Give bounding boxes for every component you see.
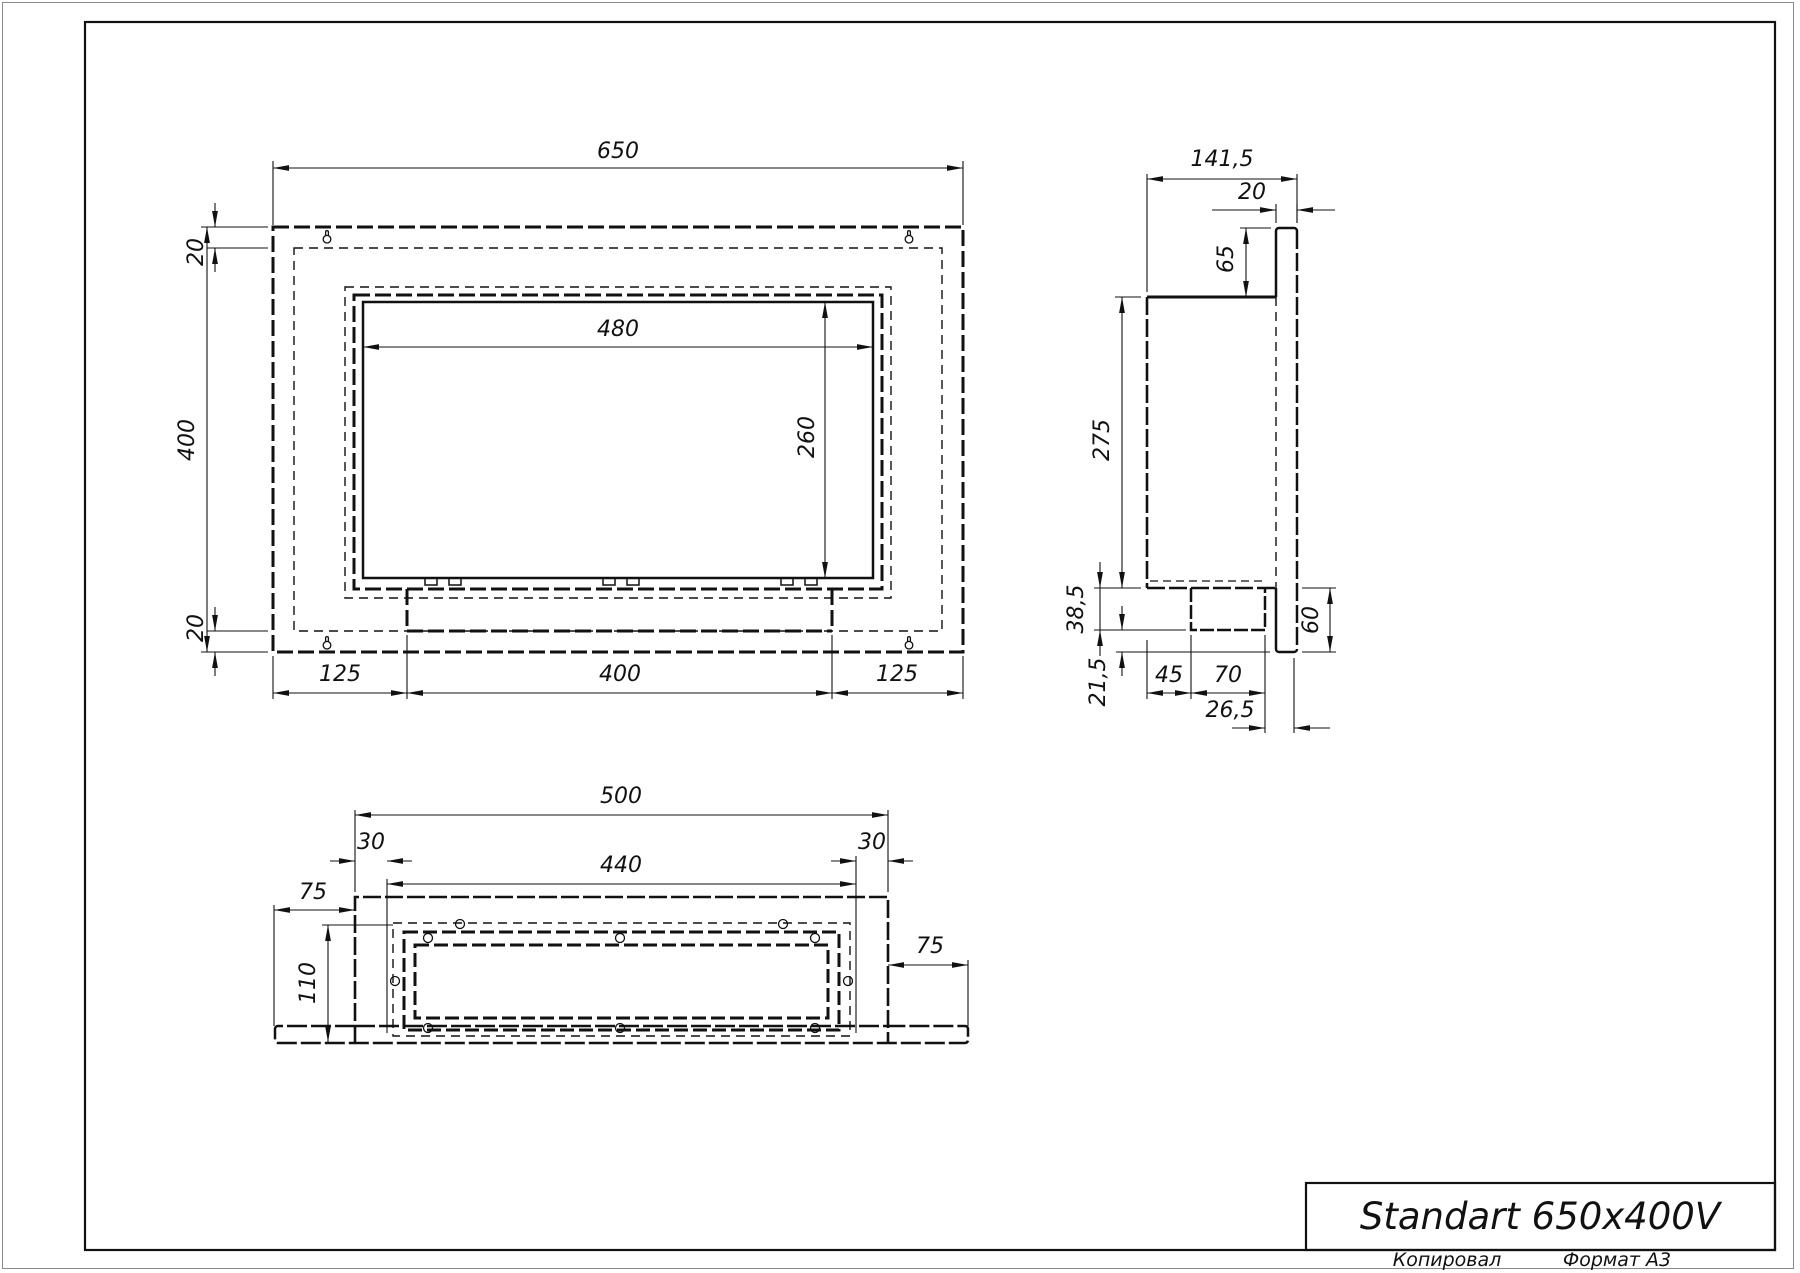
dim-side-lower-b-label: 21,5 — [1086, 658, 1111, 707]
hole-icon — [616, 934, 625, 943]
dim-bottom-left-inset-label: 30 — [357, 830, 385, 855]
dim-side-flange-bottom-label: 60 — [1299, 606, 1324, 634]
side-view: 141,5 20 65 275 38,5 — [1064, 147, 1336, 733]
hole-icon — [779, 920, 788, 929]
title-block: Standart 650x400V Копировал Формат А3 — [1306, 1183, 1775, 1271]
drawing-sheet: 650 400 20 20 480 260 — [0, 0, 1800, 1273]
dim-front-top-offset-label: 20 — [184, 238, 209, 266]
dim-bottom-depth-label: 110 — [296, 962, 321, 1004]
dim-bottom-depth — [322, 925, 393, 1042]
hole-icon — [424, 934, 433, 943]
side-flange — [1276, 228, 1297, 652]
keyhole-icon — [905, 231, 913, 243]
title-block-product-name: Standart 650x400V — [1360, 1195, 1723, 1238]
dim-side-lower-a-label: 38,5 — [1064, 585, 1089, 634]
dim-front-height-label: 400 — [175, 419, 200, 461]
front-offset-line — [294, 248, 942, 631]
bottom-window-mid-dashed — [404, 932, 839, 1030]
dim-front-opening-width-label: 480 — [597, 317, 639, 342]
footer-copied-label: Копировал — [1393, 1249, 1502, 1271]
front-keyholes — [323, 231, 913, 649]
dim-side-depth — [1147, 174, 1297, 292]
dim-bottom-right-flange-label: 75 — [916, 934, 944, 959]
front-burner-hidden — [407, 589, 832, 631]
dim-front-bottom-offset-label: 20 — [184, 614, 209, 642]
dim-front-bottom-offset — [207, 607, 268, 676]
dim-front-height — [201, 227, 268, 652]
hole-icon — [811, 934, 820, 943]
dim-side-foot-a-label: 45 — [1155, 663, 1183, 688]
keyhole-icon — [323, 637, 331, 649]
bottom-window-inner-dashed — [415, 945, 828, 1018]
dim-front-top-offset — [207, 203, 268, 272]
hole-icon — [456, 920, 465, 929]
dim-side-flange-thickness — [1212, 204, 1335, 223]
keyhole-icon — [323, 231, 331, 243]
dim-side-lower-a — [1094, 562, 1186, 656]
keyhole-icon — [905, 637, 913, 649]
dim-front-opening-height-label: 260 — [795, 416, 820, 458]
dim-side-flange-top-label: 65 — [1214, 245, 1239, 273]
dim-bottom-window-width-label: 440 — [600, 853, 642, 878]
dim-front-right-margin-label: 125 — [876, 662, 918, 687]
dim-side-flange-thickness-label: 20 — [1238, 180, 1266, 205]
drawing-frame — [85, 22, 1775, 1250]
dim-bottom-body-width-label: 500 — [600, 784, 642, 809]
dim-side-foot-b-label: 70 — [1214, 663, 1242, 688]
side-burner-box — [1191, 588, 1265, 630]
dim-side-depth-label: 141,5 — [1191, 147, 1254, 172]
dim-bottom-right-flange — [888, 960, 968, 1026]
footer-format-label: Формат А3 — [1563, 1249, 1671, 1271]
dim-side-flange-top — [1240, 228, 1271, 297]
dim-bottom-left-flange-label: 75 — [299, 880, 327, 905]
hole-icon — [844, 977, 853, 986]
bottom-body-outline — [355, 897, 888, 1043]
dim-front-width — [273, 161, 963, 225]
dim-front-width-label: 650 — [597, 139, 639, 164]
dim-front-burner-width-label: 400 — [599, 662, 641, 687]
dim-bottom-body-width — [355, 810, 888, 892]
front-view: 650 400 20 20 480 260 — [175, 139, 963, 699]
bottom-view: 500 30 30 440 75 75 — [274, 784, 968, 1043]
drawing-canvas: 650 400 20 20 480 260 — [0, 0, 1800, 1273]
dim-side-body-height-label: 275 — [1090, 419, 1115, 461]
page-edge — [3, 3, 1794, 1269]
dim-side-body-height — [1115, 297, 1141, 588]
dim-side-lower-b — [1116, 606, 1270, 676]
dim-front-left-margin-label: 125 — [319, 662, 361, 687]
dim-side-foot-c-label: 26,5 — [1206, 698, 1255, 723]
hole-icon — [391, 977, 400, 986]
bottom-screw-holes — [391, 920, 853, 1033]
dim-bottom-right-inset-label: 30 — [858, 830, 886, 855]
